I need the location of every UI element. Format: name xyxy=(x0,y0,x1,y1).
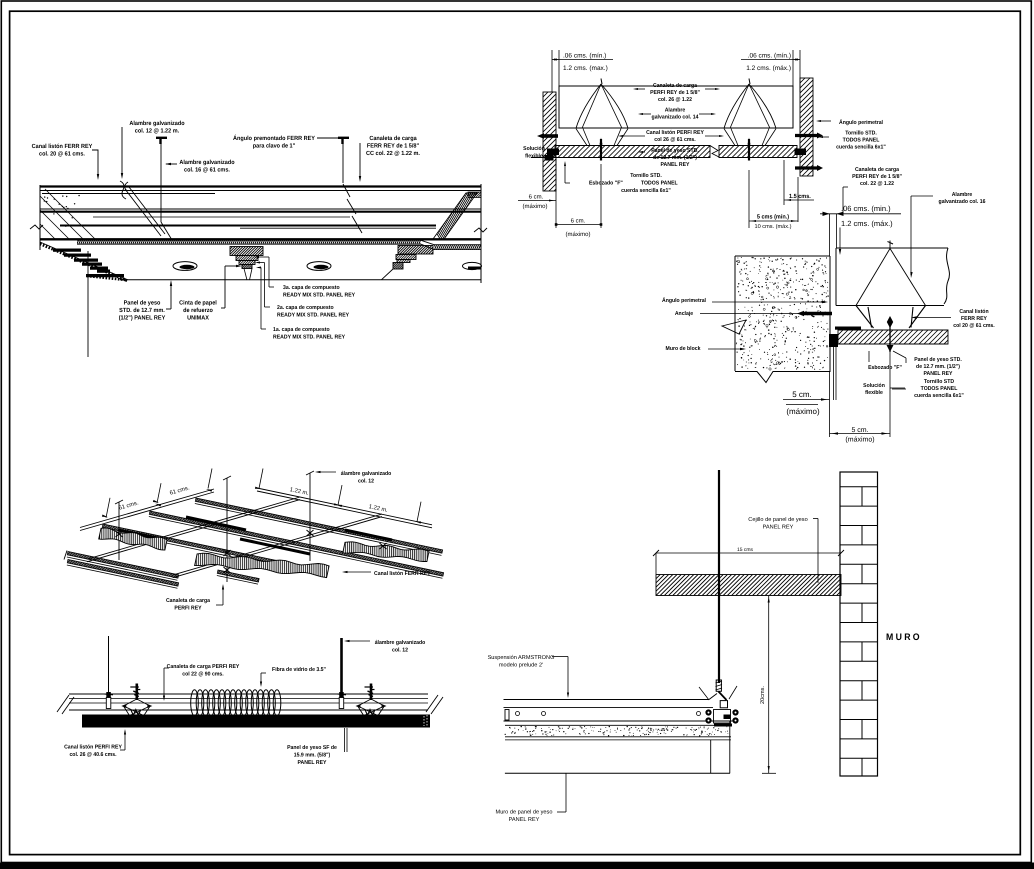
svg-text:Alambre galvanizado: Alambre galvanizado xyxy=(179,159,234,166)
svg-text:Suspensión ARMSTRONG: Suspensión ARMSTRONG xyxy=(488,654,555,661)
svg-text:Alambre galvanizado: Alambre galvanizado xyxy=(129,120,184,127)
svg-text:1a. capa de compuesto: 1a. capa de compuesto xyxy=(273,326,330,333)
svg-text:Solución: Solución xyxy=(523,145,545,152)
svg-text:Panel de yeso STD.: Panel de yeso STD. xyxy=(651,147,699,154)
svg-text:PERFI REY: PERFI REY xyxy=(174,606,201,612)
svg-text:col 26 @ 61 cms.: col 26 @ 61 cms. xyxy=(654,136,696,143)
svg-text:15 cms: 15 cms xyxy=(737,547,754,553)
svg-text:álambre galvanizado: álambre galvanizado xyxy=(375,639,426,646)
svg-text:col. 26 @ 1.22: col. 26 @ 1.22 xyxy=(658,96,692,103)
svg-text:(máximo): (máximo) xyxy=(786,407,820,416)
svg-text:Canal listón: Canal listón xyxy=(959,308,989,315)
svg-text:galvanizado col. 16: galvanizado col. 16 xyxy=(939,198,986,205)
svg-text:Tornillo STD.: Tornillo STD. xyxy=(630,172,662,179)
svg-text:Cejillo de panel de yeso: Cejillo de panel de yeso xyxy=(748,516,807,523)
svg-text:Panel de yeso SF de: Panel de yeso SF de xyxy=(287,744,337,751)
svg-text:Canal listón FERR REY: Canal listón FERR REY xyxy=(32,143,93,150)
svg-text:galvanizado col. 14: galvanizado col. 14 xyxy=(652,114,700,121)
svg-text:col. 26 @ 40.6 cms.: col. 26 @ 40.6 cms. xyxy=(69,751,117,758)
svg-text:1.5 cms.: 1.5 cms. xyxy=(789,193,811,200)
svg-text:TODOS PANEL: TODOS PANEL xyxy=(843,138,880,144)
svg-text:Panel de yeso: Panel de yeso xyxy=(124,300,161,307)
svg-text:.06 cms. (min.): .06 cms. (min.) xyxy=(841,204,891,213)
svg-text:PERFI REY de 1 5/8": PERFI REY de 1 5/8" xyxy=(852,173,902,180)
svg-text:Muro de panel de yeso: Muro de panel de yeso xyxy=(496,809,553,816)
svg-text:TODOS PANEL: TODOS PANEL xyxy=(921,386,958,392)
svg-text:5 cm.: 5 cm. xyxy=(851,427,868,434)
svg-text:Alambre: Alambre xyxy=(952,191,973,198)
svg-text:2a. capa de compuesto: 2a. capa de compuesto xyxy=(277,304,334,311)
svg-text:PANEL REY: PANEL REY xyxy=(661,162,690,168)
svg-text:de 12.7 mm. (1/2"): de 12.7 mm. (1/2") xyxy=(653,154,697,161)
svg-text:Canaleta de carga: Canaleta de carga xyxy=(855,166,900,173)
svg-text:6 cm.: 6 cm. xyxy=(571,218,586,225)
svg-text:(1/2") PANEL REY: (1/2") PANEL REY xyxy=(119,315,166,322)
svg-text:CC col. 22 @ 1.22 m.: CC col. 22 @ 1.22 m. xyxy=(366,150,420,157)
svg-text:para clavo de 1": para clavo de 1" xyxy=(253,143,296,150)
svg-text:col. 12: col. 12 xyxy=(392,647,408,654)
svg-text:Ángulo perimetral: Ángulo perimetral xyxy=(662,297,706,304)
svg-text:Cinta de papel: Cinta de papel xyxy=(179,300,217,307)
svg-text:20cms.: 20cms. xyxy=(760,686,766,704)
svg-text:PANEL REY: PANEL REY xyxy=(509,817,540,823)
svg-text:col 22 @ 90 cms.: col 22 @ 90 cms. xyxy=(182,671,224,678)
svg-text:cuerda sencilla 6x1": cuerda sencilla 6x1" xyxy=(621,187,671,194)
svg-text:(máximo): (máximo) xyxy=(523,203,548,210)
svg-text:de refuerzo: de refuerzo xyxy=(183,307,213,314)
svg-text:FERR REY de 1 5/8": FERR REY de 1 5/8" xyxy=(367,143,419,150)
svg-text:PANEL REY: PANEL REY xyxy=(924,371,953,377)
svg-text:flexible: flexible xyxy=(525,153,543,160)
svg-text:PANEL REY: PANEL REY xyxy=(763,525,794,531)
svg-text:1.2 cms. (max.): 1.2 cms. (max.) xyxy=(563,65,608,72)
svg-text:cuerda sencilla 6x1": cuerda sencilla 6x1" xyxy=(836,144,886,151)
svg-text:Alambre: Alambre xyxy=(665,107,686,114)
svg-text:col. 12 @ 1.22 m.: col. 12 @ 1.22 m. xyxy=(135,128,180,135)
svg-text:3a. capa de compuesto: 3a. capa de compuesto xyxy=(283,284,340,291)
svg-text:READY MIX STD. PANEL REY: READY MIX STD. PANEL REY xyxy=(277,313,349,319)
svg-text:PANEL REY: PANEL REY xyxy=(298,760,327,766)
svg-text:15.9 mm. (5/8"): 15.9 mm. (5/8") xyxy=(294,752,331,759)
svg-text:TODOS PANEL: TODOS PANEL xyxy=(641,181,678,187)
svg-text:.06 cms. (mín.): .06 cms. (mín.) xyxy=(563,53,606,60)
svg-text:Ángulo perimetral: Ángulo perimetral xyxy=(839,119,883,126)
svg-text:álambre galvanizado: álambre galvanizado xyxy=(341,470,392,477)
svg-text:de 12.7 mm. (1/2"): de 12.7 mm. (1/2") xyxy=(916,363,960,370)
svg-text:col 20 @ 61 cms.: col 20 @ 61 cms. xyxy=(953,322,995,329)
svg-text:col. 22 @ 1.22: col. 22 @ 1.22 xyxy=(860,180,894,187)
svg-text:Canaleta de carga: Canaleta de carga xyxy=(166,597,211,604)
svg-text:Muro de block: Muro de block xyxy=(666,345,702,352)
svg-text:Canal listón PERFI REY: Canal listón PERFI REY xyxy=(646,129,704,136)
svg-text:Anclaje: Anclaje xyxy=(675,310,693,317)
svg-text:(máximo): (máximo) xyxy=(566,231,591,238)
svg-text:Panel de yeso STD.: Panel de yeso STD. xyxy=(914,356,962,363)
svg-text:cuerda sencilla 6x1": cuerda sencilla 6x1" xyxy=(914,392,964,399)
svg-text:5 cm.: 5 cm. xyxy=(792,390,812,399)
svg-text:col. 16 @ 61 cms.: col. 16 @ 61 cms. xyxy=(184,167,230,174)
svg-text:Fibra de vidrio de 3.5": Fibra de vidrio de 3.5" xyxy=(272,666,326,673)
svg-text:STD. de 12.7 mm.: STD. de 12.7 mm. xyxy=(119,307,165,314)
svg-text:Canaleta de carga: Canaleta de carga xyxy=(369,135,417,142)
svg-text:READY MIX STD. PANEL REY: READY MIX STD. PANEL REY xyxy=(273,335,345,341)
svg-text:Ángulo premontado FERR REY: Ángulo premontado FERR REY xyxy=(233,134,315,142)
svg-text:5 cms (mín.): 5 cms (mín.) xyxy=(757,214,789,221)
svg-text:Solución: Solución xyxy=(863,382,885,389)
svg-text:6 cm.: 6 cm. xyxy=(529,194,544,201)
svg-text:MURO: MURO xyxy=(886,632,922,643)
svg-text:Esbozado "F": Esbozado "F" xyxy=(868,364,902,371)
svg-text:Tornillo STD.: Tornillo STD. xyxy=(845,130,877,137)
svg-text:UNIMAX: UNIMAX xyxy=(187,315,209,322)
svg-text:.06 cms. (mín.): .06 cms. (mín.) xyxy=(748,53,791,60)
svg-text:10 cms. (máx.): 10 cms. (máx.) xyxy=(755,223,792,230)
svg-text:1.2 cms. (máx.): 1.2 cms. (máx.) xyxy=(841,219,893,228)
svg-text:1.2 cms. (máx.): 1.2 cms. (máx.) xyxy=(746,65,791,72)
svg-text:FERR REY: FERR REY xyxy=(961,316,987,322)
svg-text:READY MIX STD. PANEL REY: READY MIX STD. PANEL REY xyxy=(283,293,355,299)
svg-text:flexible: flexible xyxy=(865,389,883,396)
svg-text:Canal listón FERR REY: Canal listón FERR REY xyxy=(374,570,431,577)
svg-text:PERFI REY de 1 5/8": PERFI REY de 1 5/8" xyxy=(650,89,700,96)
svg-text:Tornillo STD: Tornillo STD xyxy=(924,378,954,385)
svg-text:Canaleta de carga PERFI REY: Canaleta de carga PERFI REY xyxy=(167,663,240,670)
svg-text:col. 20 @ 61 cms.: col. 20 @ 61 cms. xyxy=(39,151,85,158)
svg-text:(máximo): (máximo) xyxy=(845,436,874,444)
svg-text:col. 12: col. 12 xyxy=(358,478,374,485)
svg-text:Esbozado "F": Esbozado "F" xyxy=(589,180,623,187)
svg-text:modelo prelude 2': modelo prelude 2' xyxy=(499,662,543,669)
svg-text:Canal listón PERFI REY: Canal listón PERFI REY xyxy=(64,744,122,751)
svg-text:Canaleta de carga: Canaleta de carga xyxy=(653,82,698,89)
